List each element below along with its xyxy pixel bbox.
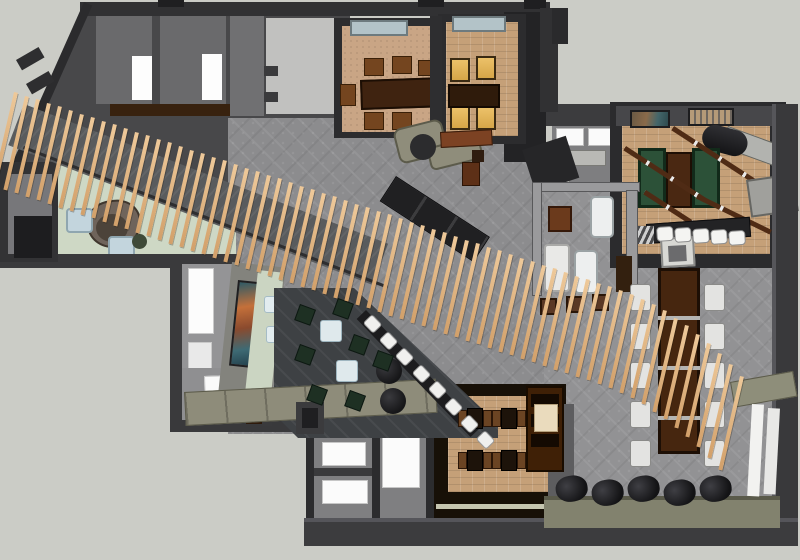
restroom-partition	[372, 430, 380, 518]
boh-door-gap	[202, 54, 222, 100]
lounge-table-blue	[320, 320, 342, 342]
brick-room-chair	[483, 452, 492, 469]
nook-table	[590, 196, 614, 238]
nook-chair-brown	[548, 206, 572, 232]
communal-podium-inner	[668, 245, 687, 262]
dining-chair	[364, 112, 384, 130]
dining-chair	[364, 58, 384, 76]
cream-block	[534, 404, 558, 432]
bar-stool	[656, 226, 674, 242]
wine-slot	[531, 434, 559, 447]
host-stand	[410, 134, 436, 160]
private-dining-1-window	[350, 20, 408, 36]
lounge-table-blue	[336, 360, 358, 382]
olive-bench-south	[544, 496, 780, 528]
bar-stool	[710, 229, 728, 245]
upper-right-wall-stub	[552, 8, 568, 44]
corridor-west-wall	[170, 264, 182, 432]
nook-wall	[532, 182, 640, 192]
amber-lit-chair	[476, 106, 496, 130]
top-wall-stub	[158, 0, 184, 7]
corridor-door-white	[188, 268, 214, 334]
small-stool	[472, 150, 484, 162]
amber-lit-chair	[450, 58, 470, 82]
boh-wood-beam	[110, 104, 230, 116]
communal-chair	[704, 284, 725, 311]
brick-room-table	[467, 450, 483, 471]
floorplan-viewport[interactable]	[0, 0, 800, 560]
boh-room-floor	[230, 16, 264, 116]
service-counter-wood	[440, 129, 493, 148]
boh-shelf	[264, 66, 278, 76]
brick-room-chair	[517, 452, 526, 469]
lounge-ottoman	[380, 388, 406, 414]
restroom-partition	[314, 468, 372, 476]
walkway-pillar-core	[302, 408, 318, 428]
entry-door-opening	[14, 216, 52, 258]
brick-room-chair	[517, 410, 526, 427]
brick-room-chair	[458, 452, 467, 469]
communal-chair	[630, 440, 651, 467]
host-chair	[462, 162, 480, 186]
amber-lit-chair	[450, 106, 470, 130]
private-dining-2-window	[452, 16, 506, 32]
boh-door-gap	[132, 56, 152, 100]
brick-room-chair	[483, 410, 492, 427]
brick-room-chair	[492, 452, 501, 469]
restroom-door	[382, 436, 420, 488]
wall-picture	[688, 108, 734, 126]
wall-picture	[630, 110, 670, 128]
top-wall-stub	[418, 0, 444, 7]
left-shelf	[16, 47, 45, 70]
nook-sofa	[544, 244, 570, 292]
brick-room-table	[501, 450, 517, 471]
surround-light-line	[436, 504, 558, 509]
bar-stool	[728, 230, 746, 246]
dining-chair	[392, 56, 412, 74]
brick-room-table	[501, 408, 517, 429]
lobby-armchair	[66, 208, 93, 233]
private-dining-2-table	[448, 84, 500, 108]
brick-room-chair	[492, 410, 501, 427]
private-dining-1-table	[360, 77, 433, 109]
bar-stool	[674, 227, 692, 243]
communal-chair	[630, 401, 651, 428]
restroom-door	[322, 480, 368, 504]
amber-lit-chair	[476, 56, 496, 80]
dining-chair	[340, 84, 356, 106]
restroom-door	[322, 442, 366, 466]
boh-shelf	[264, 92, 278, 102]
bar-stool	[692, 228, 710, 244]
lobby-plant	[132, 234, 147, 249]
